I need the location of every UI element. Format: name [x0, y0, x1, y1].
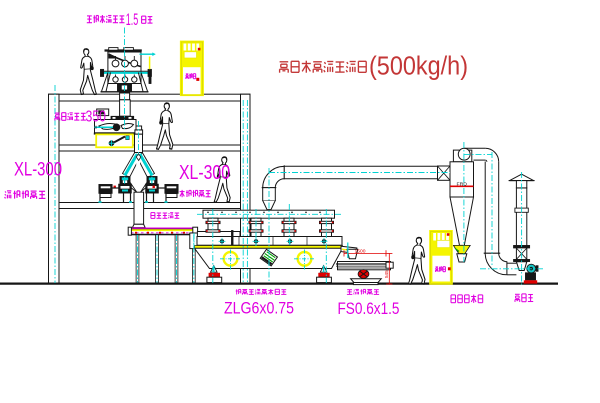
svg-text:XL-300: XL-300: [14, 159, 62, 181]
svg-text:1.5: 1.5: [126, 11, 139, 29]
svg-text:(500kg/h): (500kg/h): [369, 53, 468, 81]
svg-text:350: 350: [86, 108, 107, 125]
svg-text:545: 545: [384, 270, 389, 278]
svg-text:1500: 1500: [355, 249, 366, 254]
svg-text:XL-300: XL-300: [179, 162, 230, 184]
svg-text:FS0.6x1.5: FS0.6x1.5: [338, 299, 400, 318]
svg-text:ZLG6x0.75: ZLG6x0.75: [224, 298, 294, 317]
svg-text:FRD: FRD: [457, 181, 468, 186]
